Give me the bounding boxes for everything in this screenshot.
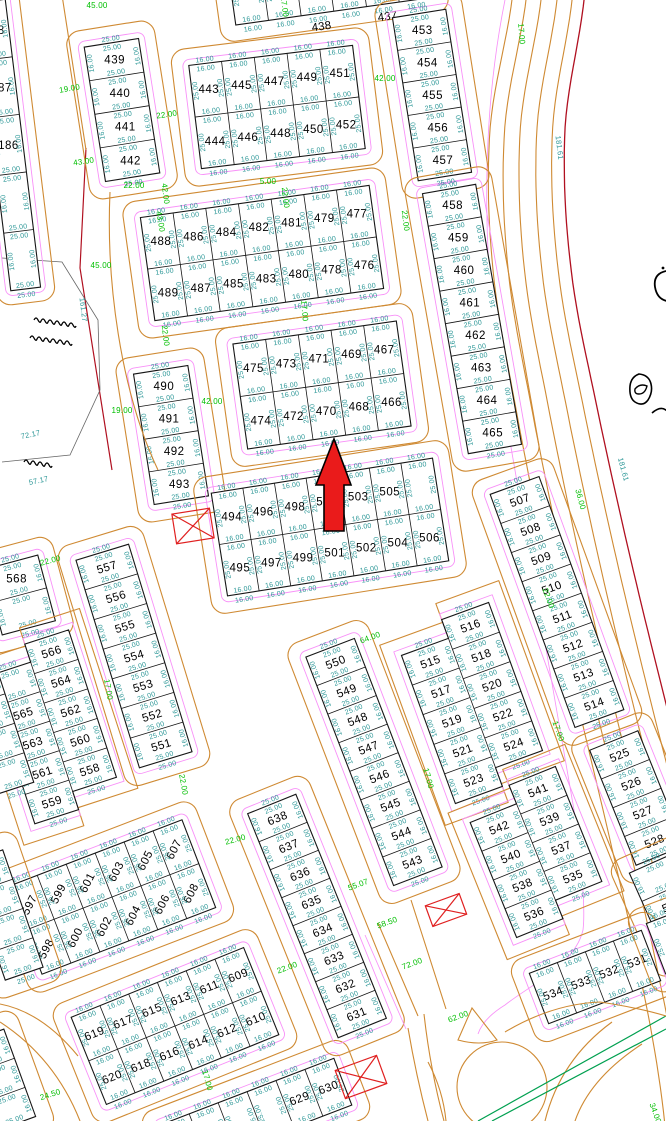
svg-text:471: 471 (309, 354, 330, 366)
svg-text:480: 480 (289, 269, 310, 281)
svg-text:489: 489 (158, 287, 179, 299)
svg-text:444: 444 (205, 136, 226, 148)
svg-text:468: 468 (349, 402, 370, 414)
svg-text:467: 467 (374, 345, 395, 357)
svg-text:487: 487 (190, 283, 211, 295)
svg-text:42.00: 42.00 (374, 74, 395, 83)
svg-text:456: 456 (427, 123, 448, 135)
svg-text:458: 458 (442, 200, 463, 212)
svg-text:486: 486 (183, 231, 204, 243)
svg-text:462: 462 (465, 330, 486, 342)
svg-text:440: 440 (110, 88, 131, 100)
svg-text:17.00: 17.00 (299, 300, 310, 322)
svg-text:472: 472 (283, 411, 304, 423)
svg-text:469: 469 (341, 349, 362, 361)
svg-text:460: 460 (454, 265, 475, 277)
svg-text:474: 474 (251, 415, 272, 427)
svg-text:488: 488 (151, 236, 172, 248)
svg-text:475: 475 (243, 363, 264, 375)
svg-text:473: 473 (276, 358, 297, 370)
svg-text:5.00: 5.00 (260, 177, 277, 186)
svg-text:485: 485 (223, 278, 244, 290)
svg-text:491: 491 (159, 414, 180, 426)
svg-text:492: 492 (164, 446, 185, 458)
svg-text:459: 459 (448, 233, 469, 245)
svg-text:451: 451 (329, 68, 350, 80)
svg-text:463: 463 (471, 363, 492, 375)
svg-text:443: 443 (198, 84, 219, 96)
svg-text:479: 479 (314, 213, 335, 225)
svg-text:465: 465 (482, 428, 503, 440)
svg-text:483: 483 (256, 274, 277, 286)
svg-text:439: 439 (104, 55, 125, 67)
svg-text:453: 453 (412, 25, 433, 37)
svg-text:17.00: 17.00 (516, 23, 527, 45)
svg-text:455: 455 (422, 90, 443, 102)
svg-text:448: 448 (270, 128, 291, 140)
svg-text:493: 493 (169, 479, 190, 491)
svg-text:478: 478 (321, 265, 342, 277)
svg-text:454: 454 (417, 57, 438, 69)
svg-text:490: 490 (154, 381, 175, 393)
svg-text:45.00: 45.00 (86, 1, 107, 10)
svg-text:482: 482 (249, 222, 270, 234)
svg-text:449: 449 (297, 72, 318, 84)
svg-text:442: 442 (120, 155, 141, 167)
svg-text:446: 446 (238, 132, 259, 144)
svg-text:457: 457 (433, 155, 454, 167)
svg-text:476: 476 (354, 260, 375, 272)
svg-text:42.00: 42.00 (201, 397, 222, 406)
svg-text:477: 477 (347, 208, 368, 220)
svg-text:464: 464 (477, 395, 498, 407)
svg-text:19.00: 19.00 (111, 406, 132, 415)
svg-text:22.00: 22.00 (123, 181, 144, 190)
svg-text:481: 481 (281, 218, 302, 230)
svg-text:470: 470 (316, 406, 337, 418)
svg-text:445: 445 (231, 80, 252, 92)
svg-text:568: 568 (6, 573, 27, 585)
svg-text:450: 450 (303, 124, 324, 136)
svg-text:484: 484 (216, 227, 237, 239)
svg-text:461: 461 (459, 298, 480, 310)
svg-text:466: 466 (381, 397, 402, 409)
svg-text:452: 452 (336, 120, 357, 132)
svg-text:447: 447 (264, 76, 285, 88)
svg-text:45.00: 45.00 (90, 261, 111, 270)
svg-text:441: 441 (115, 122, 136, 134)
